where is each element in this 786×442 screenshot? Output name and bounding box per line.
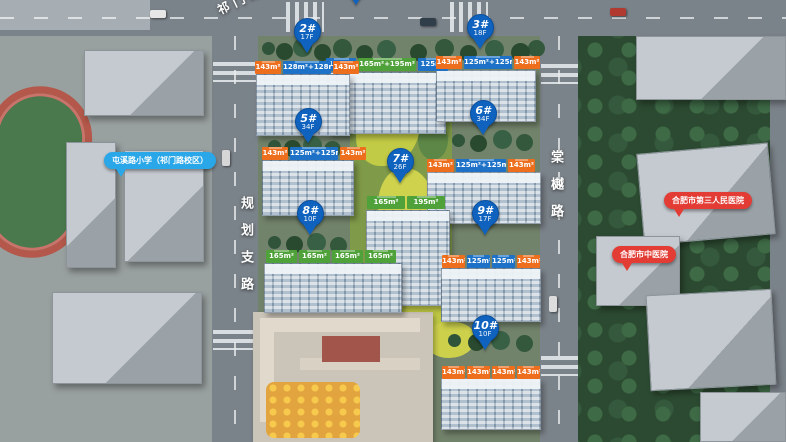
building-number: 5# xyxy=(300,113,315,124)
unit-area-label: 143m² xyxy=(517,366,540,379)
building-floors: 26F xyxy=(394,164,407,171)
building-number: 7# xyxy=(392,153,407,164)
building-number: 6# xyxy=(475,105,490,116)
unit-labels-building-2: 143m² 128m²+128m² 143m² xyxy=(255,61,359,74)
pin-head: 3# 18F xyxy=(467,14,494,41)
unit-area-label: 143m² xyxy=(517,255,540,268)
unit-area-label: 143m² xyxy=(255,61,281,74)
building-floors: 17F xyxy=(301,34,314,41)
pin-building-7[interactable]: 7# 26F xyxy=(385,148,415,190)
pin-building-8[interactable]: 8# 10F xyxy=(295,200,325,242)
pin-building-1-cropped[interactable] xyxy=(341,0,371,12)
pin-tip-icon xyxy=(301,132,315,150)
building-slab-10 xyxy=(441,378,541,430)
pin-head: 5# 34F xyxy=(295,108,322,135)
masterplan-map: 祁门路 规划支路 棠樾路 125m² 165m²+195m² 125m² xyxy=(0,0,786,442)
unit-area-label: 143m² xyxy=(514,56,540,69)
tree-cluster xyxy=(448,334,461,347)
unit-area-label: 165m² xyxy=(332,250,363,263)
pin-tip-icon xyxy=(393,172,407,190)
building-number: 8# xyxy=(302,205,317,216)
poi-bubble-tail xyxy=(116,169,126,182)
city-block xyxy=(52,292,202,384)
poi-bubble-tail xyxy=(674,209,684,222)
pin-building-9[interactable]: 9# 17F xyxy=(470,200,500,242)
unit-area-label: 165m² xyxy=(299,250,330,263)
playground xyxy=(266,382,360,438)
unit-area-label: 143m² xyxy=(442,255,465,268)
crosswalk xyxy=(541,356,578,376)
kindergarten-roof xyxy=(260,318,420,332)
unit-labels-building-6: 143m² 125m²+125m² 143m² xyxy=(427,159,535,172)
road-name-qimen: 祁门路 xyxy=(214,0,267,18)
city-block xyxy=(0,0,150,30)
road-name-guihua-branch: 规划支路 xyxy=(236,196,255,304)
building-floors: 10F xyxy=(304,216,317,223)
building-number: 10# xyxy=(474,320,497,331)
building-number: 2# xyxy=(299,23,314,34)
pin-tip-icon xyxy=(473,38,487,56)
poi-school-bubble[interactable]: 屯溪路小学（祁门路校区） xyxy=(104,152,216,169)
pin-tip-icon xyxy=(300,42,314,60)
tree-cluster xyxy=(262,42,275,55)
poi-bubble-tail xyxy=(622,263,632,276)
unit-area-label: 125m² xyxy=(467,255,490,268)
unit-area-label: 165m² xyxy=(266,250,297,263)
pin-head: 6# 34F xyxy=(470,100,497,127)
pin-tip-icon xyxy=(478,339,492,357)
pin-tip-icon xyxy=(349,0,363,12)
unit-area-label: 128m²+128m² xyxy=(283,61,331,74)
building-floors: 10F xyxy=(479,331,492,338)
hospital-building xyxy=(636,36,786,100)
hospital-building xyxy=(700,392,786,442)
pin-head: 2# 17F xyxy=(294,18,321,45)
city-block xyxy=(84,50,204,116)
pin-building-10[interactable]: 10# 10F xyxy=(470,315,500,357)
crosswalk xyxy=(213,62,258,82)
sports-court xyxy=(322,336,380,362)
unit-labels-building-7: 165m² 195m² xyxy=(367,196,445,209)
hospital-building xyxy=(646,289,777,391)
unit-area-label: 125m²+125m² xyxy=(456,159,506,172)
pin-head: 7# 26F xyxy=(387,148,414,175)
unit-area-label: 143m² xyxy=(508,159,535,172)
unit-area-label: 143m² xyxy=(340,147,366,160)
tree-cluster xyxy=(452,134,465,147)
unit-area-label: 165m²+195m² xyxy=(358,58,416,71)
unit-labels-building-10: 143m² 143m² 143m² 143m² xyxy=(442,366,540,379)
unit-area-label: 143m² xyxy=(436,56,462,69)
building-floors: 34F xyxy=(477,116,490,123)
poi-hospital-1-bubble[interactable]: 合肥市第三人民医院 xyxy=(664,192,752,209)
tree-cluster xyxy=(268,236,281,249)
building-slab-9 xyxy=(441,268,541,322)
unit-area-label: 195m² xyxy=(407,196,445,209)
pin-building-5[interactable]: 5# 34F xyxy=(293,108,323,150)
building-floors: 34F xyxy=(302,124,315,131)
lane-marking xyxy=(0,17,786,19)
unit-area-label: 143m² xyxy=(442,366,465,379)
unit-area-label: 143m² xyxy=(333,61,359,74)
building-slab-8 xyxy=(264,263,402,313)
pin-head: 8# 10F xyxy=(297,200,324,227)
lane-marking xyxy=(558,36,560,442)
vehicle xyxy=(222,150,230,166)
unit-area-label: 143m² xyxy=(427,159,454,172)
crosswalk xyxy=(213,330,258,350)
building-floors: 18F xyxy=(474,30,487,37)
pin-head: 10# 10F xyxy=(472,315,499,342)
unit-labels-building-9: 143m² 125m² 125m² 143m² xyxy=(442,255,540,268)
poi-hospital-2-bubble[interactable]: 合肥市中医院 xyxy=(612,246,676,263)
pin-tip-icon xyxy=(476,124,490,142)
road-name-tangyue: 棠樾路 xyxy=(546,150,565,231)
unit-area-label: 165m² xyxy=(367,196,405,209)
unit-area-label: 165m² xyxy=(365,250,396,263)
unit-area-label: 143m² xyxy=(467,366,490,379)
pin-building-6[interactable]: 6# 34F xyxy=(468,100,498,142)
vehicle xyxy=(610,8,626,16)
pin-tip-icon xyxy=(478,224,492,242)
building-number: 9# xyxy=(477,205,492,216)
unit-labels-building-3: 143m² 125m²+125m² 143m² xyxy=(436,56,540,69)
unit-area-label: 143m² xyxy=(262,147,288,160)
vehicle xyxy=(420,18,436,26)
pin-head: 9# 17F xyxy=(472,200,499,227)
pin-tip-icon xyxy=(303,224,317,242)
vehicle xyxy=(150,10,166,18)
pin-building-2[interactable]: 2# 17F xyxy=(292,18,322,60)
unit-area-label: 143m² xyxy=(492,366,515,379)
unit-labels-building-8: 165m² 165m² 165m² 165m² xyxy=(266,250,396,263)
crosswalk xyxy=(541,64,578,84)
unit-area-label: 125m²+125m² xyxy=(464,56,512,69)
building-floors: 17F xyxy=(479,216,492,223)
pin-building-3[interactable]: 3# 18F xyxy=(465,14,495,56)
vehicle xyxy=(549,296,557,312)
building-number: 3# xyxy=(472,19,487,30)
unit-area-label: 125m² xyxy=(492,255,515,268)
